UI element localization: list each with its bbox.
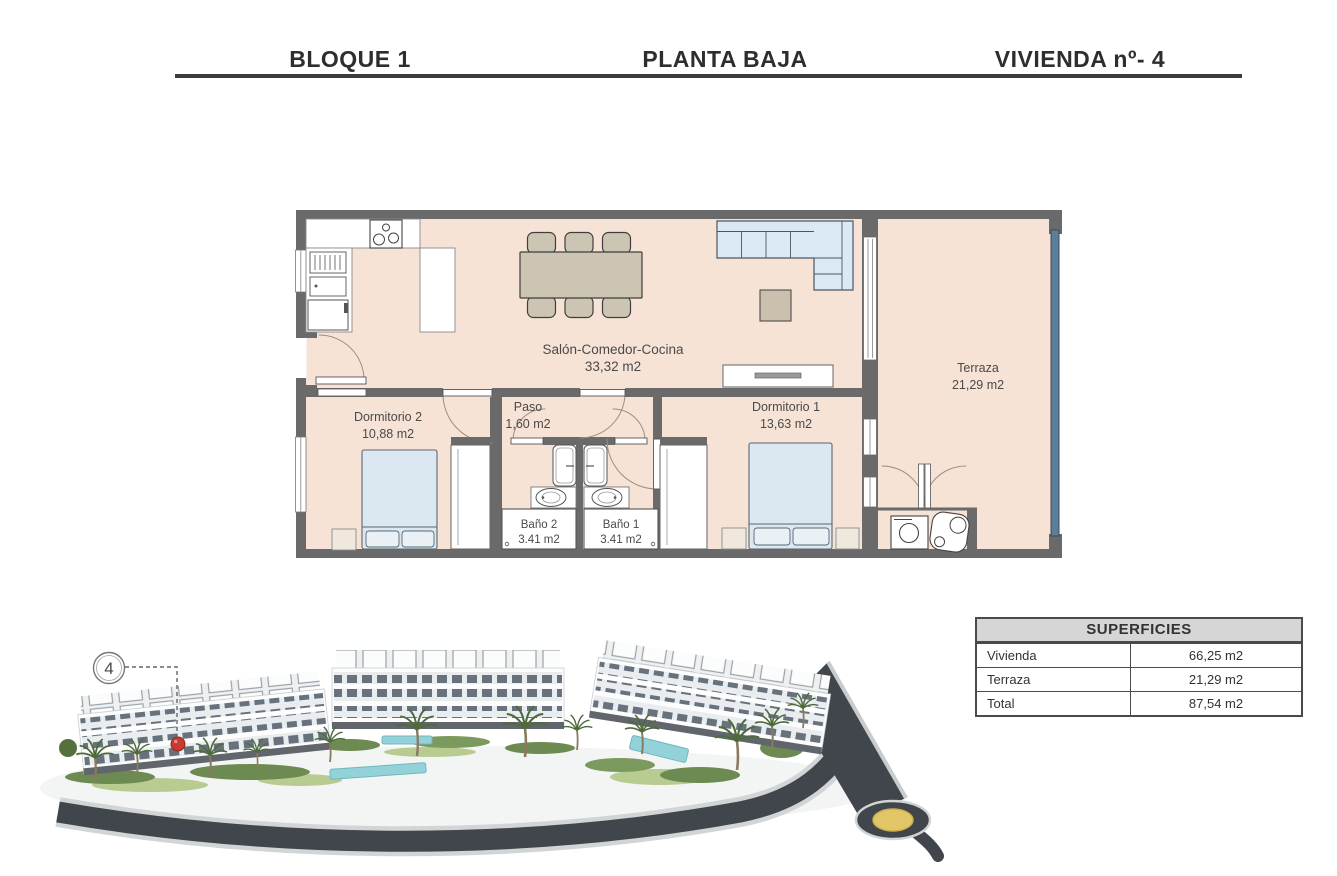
- row-label: Terraza: [977, 668, 1131, 691]
- shower-icon: [584, 445, 607, 486]
- kitchen-window: [296, 250, 307, 292]
- site-render: 4: [40, 640, 938, 856]
- dormitorio2-window: [296, 437, 307, 512]
- dining-set: [520, 233, 642, 318]
- nightstand: [332, 529, 356, 550]
- marker-highlight: [174, 740, 178, 744]
- washbasin-icon: [531, 487, 576, 508]
- row-value: 21,29 m2: [1131, 668, 1301, 691]
- table-row: Terraza 21,29 m2: [977, 667, 1301, 691]
- dining-chair: [528, 297, 556, 318]
- sink-drainer-icon: [310, 252, 346, 273]
- kitchen-tall-unit: [420, 248, 455, 332]
- room-area-bano1: 3.41 m2: [600, 534, 642, 546]
- room-area-salon: 33,32 m2: [585, 359, 641, 374]
- nightstand: [836, 528, 859, 549]
- room-label-bano1: Baño 1: [603, 519, 639, 531]
- surfaces-table: SUPERFICIES Vivienda 66,25 m2 Terraza 21…: [975, 617, 1303, 717]
- washbasin-icon: [584, 487, 629, 508]
- floorplan-canvas: Salón-Comedor-Cocina 33,32 m2 Terraza 21…: [0, 0, 1337, 876]
- pillow: [793, 528, 829, 545]
- plan-sheet: BLOQUE 1 PLANTA BAJA VIVIENDA nº- 4: [0, 0, 1337, 876]
- pool: [382, 736, 432, 744]
- room-area-dormitorio2: 10,88 m2: [362, 427, 414, 441]
- room-area-bano2: 3.41 m2: [518, 534, 560, 546]
- shower-icon: [553, 445, 576, 486]
- dining-chair: [565, 233, 593, 254]
- dining-table: [520, 252, 642, 298]
- room-label-dormitorio2: Dormitorio 2: [354, 410, 422, 424]
- dining-chair: [603, 233, 631, 254]
- dining-chair: [603, 297, 631, 318]
- kitchen-counter-top: [306, 219, 420, 248]
- water-heater-icon: [929, 511, 971, 554]
- coffee-table: [760, 290, 791, 321]
- room-label-dormitorio1: Dormitorio 1: [752, 400, 820, 414]
- row-value: 66,25 m2: [1131, 644, 1301, 667]
- fridge-icon: [308, 300, 348, 330]
- nightstand: [722, 528, 746, 549]
- room-label-salon: Salón-Comedor-Cocina: [542, 342, 684, 357]
- apartment-floorplan: Salón-Comedor-Cocina 33,32 m2 Terraza 21…: [296, 210, 1063, 558]
- row-label: Vivienda: [977, 644, 1131, 667]
- roundabout-center: [873, 809, 913, 831]
- terrace-utility: [878, 509, 977, 553]
- room-label-paso: Paso: [514, 400, 543, 414]
- room-area-dormitorio1: 13,63 m2: [760, 417, 812, 431]
- dormitorio1-furniture: [660, 437, 859, 549]
- room-area-terraza: 21,29 m2: [952, 378, 1004, 392]
- terrace-glass-railing: [1051, 230, 1059, 536]
- terrace-sliding-door: [864, 237, 877, 360]
- dining-chair: [565, 297, 593, 318]
- tv-unit: [723, 365, 833, 387]
- dormitorio1-window-upper: [864, 419, 877, 455]
- table-row: Vivienda 66,25 m2: [977, 643, 1301, 667]
- unit-location-marker: [171, 737, 185, 751]
- entry-door-opening: [296, 338, 307, 378]
- row-label: Total: [977, 692, 1131, 715]
- stove-icon: [370, 220, 402, 248]
- surfaces-table-title: SUPERFICIES: [977, 619, 1301, 643]
- row-value: 87,54 m2: [1131, 692, 1301, 715]
- pillow: [366, 531, 399, 547]
- table-row: Total 87,54 m2: [977, 691, 1301, 715]
- dining-chair: [528, 233, 556, 254]
- washing-machine-icon: [891, 516, 928, 549]
- dormitorio1-window-lower: [864, 477, 877, 507]
- wardrobe: [660, 437, 707, 549]
- wardrobe: [451, 437, 490, 549]
- pillow: [754, 528, 790, 545]
- room-label-bano2: Baño 2: [521, 519, 557, 531]
- room-area-paso: 1,60 m2: [505, 417, 550, 431]
- kitchen-sink-icon: [310, 277, 346, 296]
- building-block-middle: [332, 650, 564, 729]
- room-label-terraza: Terraza: [957, 361, 999, 375]
- unit-callout-number: 4: [104, 659, 113, 678]
- building-block-right: [589, 640, 833, 755]
- pillow: [402, 531, 434, 547]
